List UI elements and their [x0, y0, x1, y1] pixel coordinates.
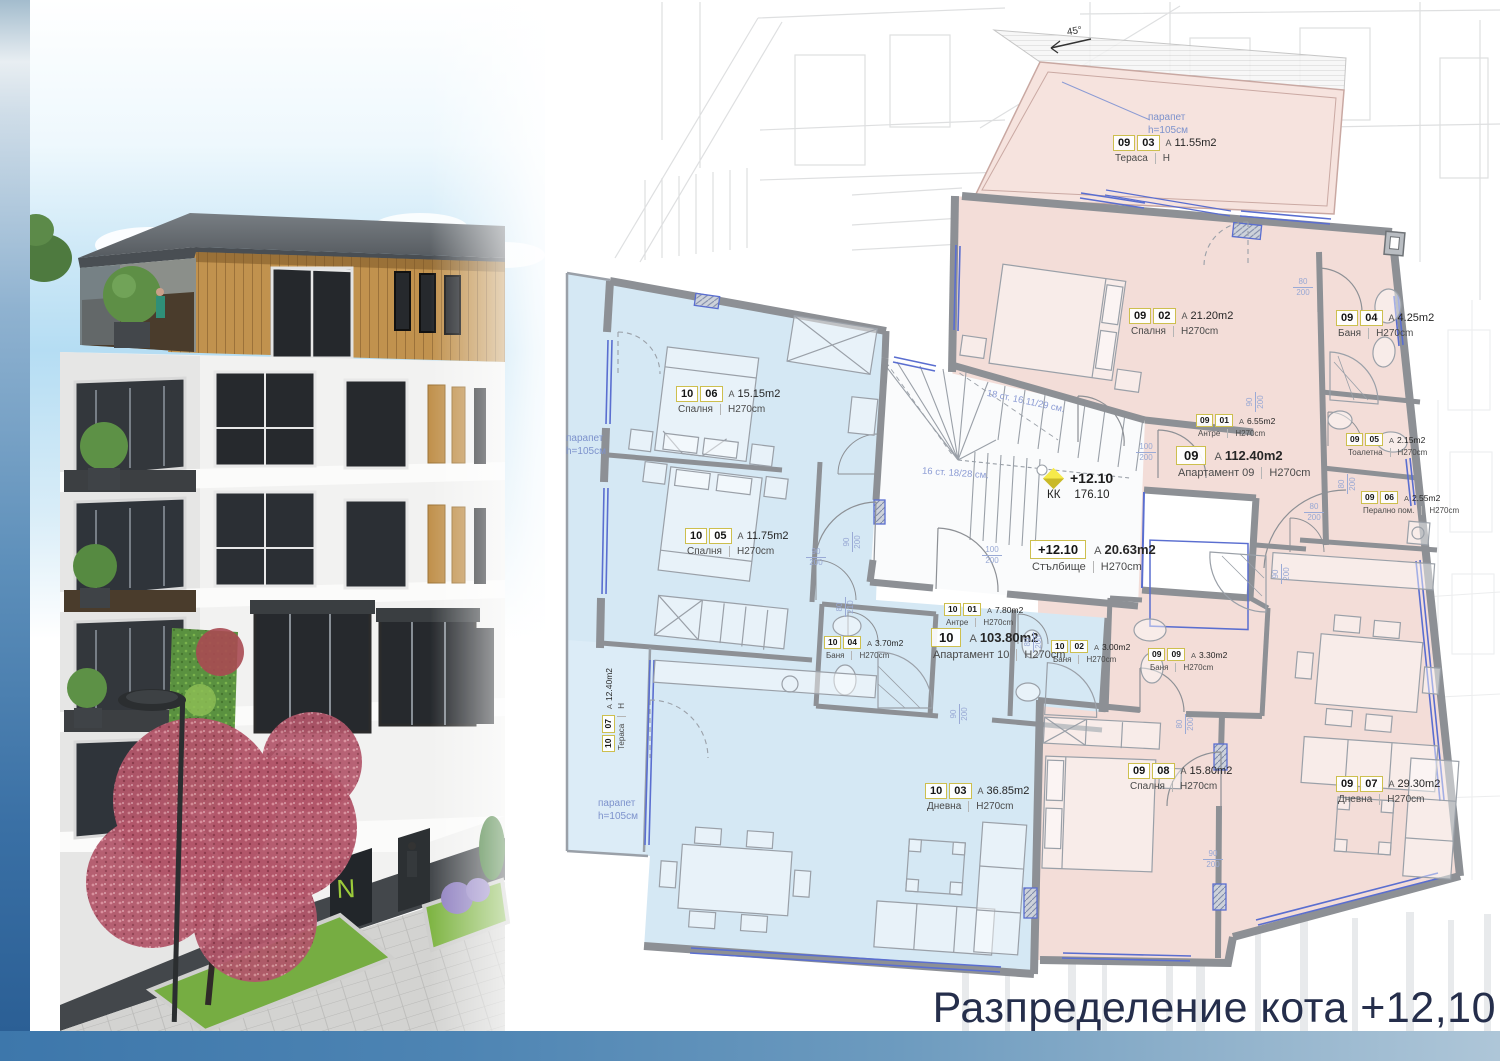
- room-label-row1: 1004A3.70m2: [824, 636, 903, 649]
- door-width: 80: [1337, 480, 1346, 489]
- area-prefix: A: [1181, 766, 1187, 776]
- door-height: 200: [1034, 635, 1043, 648]
- room-area: A3.70m2: [867, 638, 903, 648]
- room-label-row2: СпалняH270cm: [1128, 781, 1232, 792]
- room-label-row1: 1005A11.75m2: [685, 528, 789, 544]
- room-area: A4.25m2: [1389, 312, 1435, 324]
- room-name: Дневна: [927, 801, 961, 812]
- parapet-note: парапетh=105см: [598, 798, 638, 823]
- room-label-09-02: 0902A21.20m2СпалняH270cm: [1129, 308, 1233, 337]
- room-number: 06: [1380, 491, 1397, 504]
- room-height: H270cm: [851, 651, 889, 660]
- room-number: 06: [700, 386, 722, 402]
- room-label-09-01: 0901A6.55m2АнтреH270cm: [1196, 414, 1275, 438]
- parapet-line1: парапет: [566, 433, 606, 446]
- room-label-row2: БаняH270cm: [824, 651, 903, 660]
- room-label-row2: ТоалетнаH270cm: [1346, 448, 1427, 457]
- room-label-row1: 0909A3.30m2: [1148, 648, 1227, 661]
- room-area: A29.30m2: [1389, 778, 1441, 790]
- room-area: A36.85m2: [978, 785, 1030, 797]
- door-width: 100: [1139, 442, 1152, 451]
- room-label-row2: Перално пом.H270cm: [1361, 506, 1459, 515]
- room-apartment-number: 09: [1148, 648, 1165, 661]
- door-width: 90: [1209, 849, 1218, 858]
- area-prefix: A: [978, 786, 984, 796]
- room-label-10-05: 1005A11.75m2СпалняH270cm: [685, 528, 789, 557]
- room-number: 03: [949, 783, 971, 799]
- door-width: 80: [1175, 720, 1184, 729]
- room-height: Н: [1155, 153, 1170, 164]
- parapet-line2: h=105см: [566, 446, 606, 459]
- area-prefix: A: [1094, 643, 1099, 652]
- area-prefix: A: [1166, 138, 1172, 148]
- room-number: 02: [1153, 308, 1175, 324]
- apartment-label-10: 10A103.80m2Апартамент 10H270cm: [931, 628, 1065, 661]
- area-prefix: A: [605, 704, 614, 709]
- room-area: A3.30m2: [1191, 650, 1227, 660]
- door-dimension: 80200: [1293, 278, 1313, 297]
- room-area: A2.55m2: [1404, 493, 1440, 503]
- apartment-area: A20.63m2: [1094, 542, 1156, 557]
- room-number: 05: [1365, 433, 1382, 446]
- apartment-height: H270cm: [1093, 561, 1142, 573]
- parapet-note: парапетh=105см: [1148, 112, 1188, 137]
- room-label-row1: 0903A11.55m2: [1113, 135, 1217, 151]
- door-height: 200: [1139, 453, 1152, 462]
- door-height: 200: [960, 707, 969, 720]
- room-number: 07: [1360, 776, 1382, 792]
- parapet-note: парапетh=105см: [566, 433, 606, 458]
- area-prefix: A: [1191, 651, 1196, 660]
- area-prefix: A: [1239, 417, 1244, 426]
- door-width: 80: [835, 603, 844, 612]
- door-dimension: 100200: [1136, 443, 1156, 462]
- apartment-label-09: 09A112.40m2Апартамент 09H270cm: [1176, 446, 1310, 479]
- room-label-10-01: 1001A7.80m2АнтреH270cm: [944, 603, 1023, 627]
- level-diamond-icon: [1043, 467, 1064, 488]
- room-name: Антре: [1198, 429, 1220, 438]
- room-apartment-number: 09: [1129, 308, 1151, 324]
- room-number: 08: [1152, 763, 1174, 779]
- room-height: H270cm: [720, 404, 765, 415]
- area-prefix: A: [738, 531, 744, 541]
- door-dimension: 80200: [1024, 632, 1043, 652]
- door-dimension: 90200: [950, 704, 969, 724]
- area-prefix: A: [1094, 545, 1101, 557]
- room-apartment-number: 10: [824, 636, 841, 649]
- room-label-09-04: 0904A4.25m2БаняH270cm: [1336, 310, 1434, 339]
- room-number: 05: [709, 528, 731, 544]
- room-label-row1: 0908A15.80m2: [1128, 763, 1232, 779]
- room-name: Спалня: [1131, 326, 1166, 337]
- room-name: Тераса: [1115, 153, 1148, 164]
- room-label-row1: 0901A6.55m2: [1196, 414, 1275, 427]
- room-apartment-number: 09: [1361, 491, 1378, 504]
- parapet-line1: парапет: [598, 798, 638, 811]
- kk-label: КК: [1047, 489, 1060, 501]
- parapet-line1: парапет: [1148, 112, 1188, 125]
- room-label-09-06: 0906A2.55m2Перално пом.H270cm: [1361, 491, 1459, 515]
- room-height: H270cm: [1379, 794, 1424, 805]
- area-prefix: A: [1214, 451, 1221, 463]
- apartment-label-row1: +12.10A20.63m2: [1030, 540, 1156, 559]
- apartment-label-row2: Апартамент 10H270cm: [931, 649, 1065, 661]
- door-height: 210: [846, 600, 855, 613]
- door-height: 200: [1282, 567, 1291, 580]
- room-apartment-number: 09: [1196, 414, 1213, 427]
- room-area: A12.40m2: [604, 668, 614, 709]
- room-apartment-number: 10: [602, 735, 615, 752]
- room-label-09-05: 0905A2.15m2ТоалетнаH270cm: [1346, 433, 1427, 457]
- room-name: Баня: [1150, 663, 1168, 672]
- room-label-10-07: 1007A12.40m2ТерасаН: [602, 668, 626, 752]
- parapet-line2: h=105см: [1148, 125, 1188, 138]
- room-label-row1: 0902A21.20m2: [1129, 308, 1233, 324]
- room-area: A11.75m2: [738, 530, 789, 542]
- room-label-row2: АнтреH270cm: [1196, 429, 1275, 438]
- room-number: 01: [1215, 414, 1232, 427]
- room-name: Спалня: [678, 404, 713, 415]
- door-dimension: 90200: [1246, 392, 1265, 412]
- level-value: +12.10: [1070, 470, 1113, 486]
- door-width: 90: [1271, 570, 1280, 579]
- area-prefix: A: [1389, 436, 1394, 445]
- room-name: Баня: [1338, 328, 1361, 339]
- room-height: H270cm: [968, 801, 1013, 812]
- door-height: 200: [1296, 288, 1309, 297]
- area-prefix: A: [987, 606, 992, 615]
- room-area: A3.00m2: [1094, 642, 1130, 652]
- apartment-number: 10: [931, 628, 961, 647]
- kk-value: 176.10: [1074, 489, 1109, 501]
- area-prefix: A: [1389, 313, 1395, 323]
- room-label-row1: 0904A4.25m2: [1336, 310, 1434, 326]
- level-marker: +12.10 КК176.10: [1046, 470, 1113, 501]
- room-height: Н: [617, 703, 626, 717]
- room-apartment-number: 09: [1336, 310, 1358, 326]
- room-label-row1: 0905A2.15m2: [1346, 433, 1427, 446]
- room-label-row1: 0906A2.55m2: [1361, 491, 1459, 504]
- door-height: 200: [853, 535, 862, 548]
- room-apartment-number: 09: [1128, 763, 1150, 779]
- area-prefix: A: [729, 389, 735, 399]
- door-dimension: 80200: [1304, 503, 1324, 522]
- room-label-row2: БаняH270cm: [1336, 328, 1434, 339]
- door-width: 90: [949, 710, 958, 719]
- room-label-09-07: 0907A29.30m2ДневнаH270cm: [1336, 776, 1440, 805]
- door-width: 80: [1299, 277, 1308, 286]
- room-apartment-number: 09: [1336, 776, 1358, 792]
- room-name: Спалня: [687, 546, 722, 557]
- room-name: Тоалетна: [1348, 448, 1383, 457]
- room-area: A15.80m2: [1181, 765, 1233, 777]
- room-height: H270cm: [975, 618, 1013, 627]
- door-width: 80: [1310, 502, 1319, 511]
- room-label-09-09: 0909A3.30m2БаняH270cm: [1148, 648, 1227, 672]
- area-prefix: A: [867, 639, 872, 648]
- room-apartment-number: 10: [685, 528, 707, 544]
- presentation-page: N: [0, 0, 1500, 1061]
- room-height: H270cm: [1421, 506, 1459, 515]
- room-label-row2: ДневнаH270cm: [925, 801, 1029, 812]
- door-width: 90: [1245, 398, 1254, 407]
- door-width: 100: [985, 545, 998, 554]
- room-label-10-04: 1004A3.70m2БаняH270cm: [824, 636, 903, 660]
- room-label-row1: 1001A7.80m2: [944, 603, 1023, 616]
- room-height: H270cm: [1175, 663, 1213, 672]
- door-dimension: 80210: [836, 597, 855, 617]
- room-label-row2: ТерасаН: [1113, 153, 1217, 164]
- apartment-label-12.10: +12.10A20.63m2СтълбищеH270cm: [1030, 540, 1156, 573]
- door-dimension: 90200: [1203, 850, 1223, 869]
- room-label-10-03: 1003A36.85m2ДневнаH270cm: [925, 783, 1029, 812]
- room-area: A11.55m2: [1166, 137, 1217, 149]
- room-height: H270cm: [1227, 429, 1265, 438]
- room-label-row1: 1003A36.85m2: [925, 783, 1029, 799]
- room-label-row2: БаняH270cm: [1148, 663, 1227, 672]
- room-apartment-number: 10: [925, 783, 947, 799]
- room-label-09-03: 0903A11.55m2ТерасаН: [1113, 135, 1217, 164]
- room-number: 07: [602, 715, 615, 732]
- page-title: Разпределение кота +12,10: [933, 984, 1496, 1033]
- room-name: Дневна: [1338, 794, 1372, 805]
- apartment-area: A112.40m2: [1214, 448, 1282, 463]
- room-number: 04: [843, 636, 860, 649]
- door-height: 200: [1206, 860, 1219, 869]
- room-height: H270cm: [1390, 448, 1428, 457]
- room-height: H270cm: [1172, 781, 1217, 792]
- room-number: 04: [1360, 310, 1382, 326]
- room-number: 03: [1137, 135, 1159, 151]
- room-label-10-06: 1006A15.15m2СпалняH270cm: [676, 386, 780, 415]
- room-height: H270cm: [1368, 328, 1413, 339]
- room-label-row2: СпалняH270cm: [1129, 326, 1233, 337]
- area-prefix: A: [1404, 494, 1409, 503]
- apartment-name: Апартамент 09: [1178, 467, 1254, 479]
- room-height: H270cm: [1078, 655, 1116, 664]
- room-name: Спалня: [1130, 781, 1165, 792]
- apartment-number: +12.10: [1030, 540, 1086, 559]
- door-height: 200: [985, 556, 998, 565]
- door-dimension: 100200: [982, 546, 1002, 565]
- apartment-label-row1: 09A112.40m2: [1176, 446, 1310, 465]
- area-prefix: A: [969, 633, 976, 645]
- room-area: A6.55m2: [1239, 416, 1275, 426]
- door-height: 200: [1307, 513, 1320, 522]
- room-apartment-number: 09: [1113, 135, 1135, 151]
- apartment-label-row1: 10A103.80m2: [931, 628, 1065, 647]
- room-height: H270cm: [1173, 326, 1218, 337]
- room-area: A2.15m2: [1389, 435, 1425, 445]
- room-label-row2: СпалняH270cm: [685, 546, 789, 557]
- room-name: Тераса: [617, 724, 626, 750]
- apartment-label-row2: Апартамент 09H270cm: [1176, 467, 1310, 479]
- room-label-row2: ДневнаH270cm: [1336, 794, 1440, 805]
- room-area: A15.15m2: [729, 388, 781, 400]
- door-dimension: 90200: [1272, 564, 1291, 584]
- room-label-row2: ТерасаН: [617, 668, 626, 752]
- door-height: 200: [1348, 477, 1357, 490]
- room-label-09-08: 0908A15.80m2СпалняH270cm: [1128, 763, 1232, 792]
- room-apartment-number: 09: [1346, 433, 1363, 446]
- parapet-line2: h=105см: [598, 811, 638, 824]
- apartment-height: H270cm: [1261, 467, 1310, 479]
- room-number: 01: [963, 603, 980, 616]
- area-prefix: A: [1389, 779, 1395, 789]
- north-angle-mark: 45°: [1045, 26, 1105, 56]
- room-name: Баня: [826, 651, 844, 660]
- room-name: Антре: [946, 618, 968, 627]
- door-dimension: 90200: [843, 532, 862, 552]
- room-height: H270cm: [729, 546, 774, 557]
- door-width: 90: [812, 547, 821, 556]
- room-label-row1: 0907A29.30m2: [1336, 776, 1440, 792]
- door-height: 200: [809, 558, 822, 567]
- apartment-name: Стълбище: [1032, 561, 1086, 573]
- door-dimension: 80200: [1338, 474, 1357, 494]
- room-name: Перално пом.: [1363, 506, 1414, 515]
- room-area: A21.20m2: [1182, 310, 1234, 322]
- room-label-row2: СпалняH270cm: [676, 404, 780, 415]
- door-width: 90: [842, 538, 851, 547]
- door-dimension: 90200: [806, 548, 826, 567]
- room-label-row1: 1006A15.15m2: [676, 386, 780, 402]
- room-number: 02: [1070, 640, 1087, 653]
- door-height: 200: [1186, 717, 1195, 730]
- door-width: 80: [1023, 638, 1032, 647]
- apartment-number: 09: [1176, 446, 1206, 465]
- room-area: A7.80m2: [987, 605, 1023, 615]
- area-prefix: A: [1182, 311, 1188, 321]
- room-apartment-number: 10: [676, 386, 698, 402]
- room-label-row2: АнтреH270cm: [944, 618, 1023, 627]
- apartment-label-row2: СтълбищеH270cm: [1030, 561, 1156, 573]
- room-label-row1: 1007A12.40m2: [602, 668, 615, 752]
- apartment-name: Апартамент 10: [933, 649, 1009, 661]
- room-number: 09: [1167, 648, 1184, 661]
- bottom-accent-bar: [0, 1031, 1500, 1061]
- room-apartment-number: 10: [944, 603, 961, 616]
- door-height: 200: [1256, 395, 1265, 408]
- door-dimension: 80200: [1176, 714, 1195, 734]
